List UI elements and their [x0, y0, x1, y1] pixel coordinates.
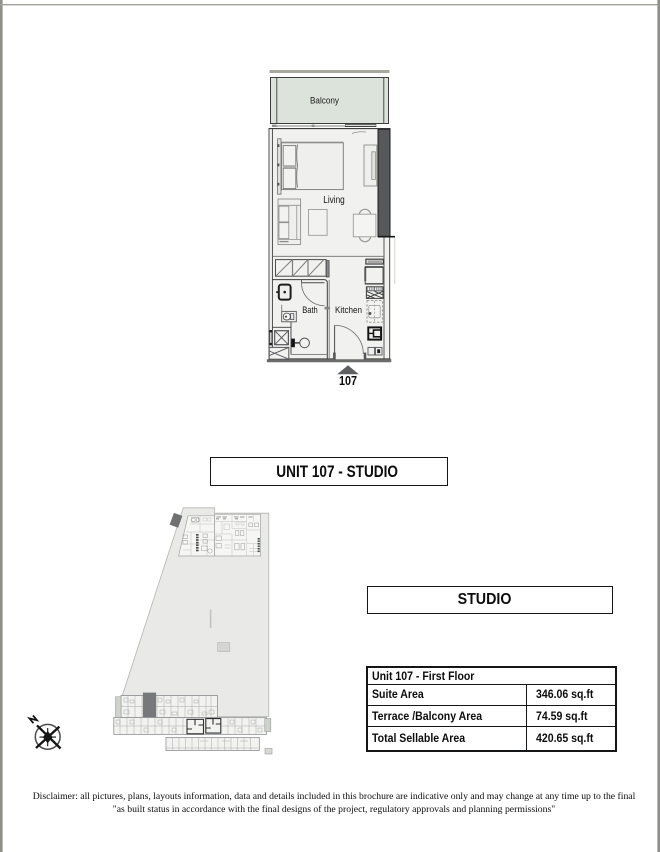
svg-text:Balcony: Balcony: [310, 94, 339, 105]
svg-text:107: 107: [339, 373, 357, 388]
svg-text:Kitchen: Kitchen: [335, 304, 362, 315]
svg-text:Living: Living: [323, 195, 345, 206]
svg-text:Bath: Bath: [302, 304, 318, 315]
